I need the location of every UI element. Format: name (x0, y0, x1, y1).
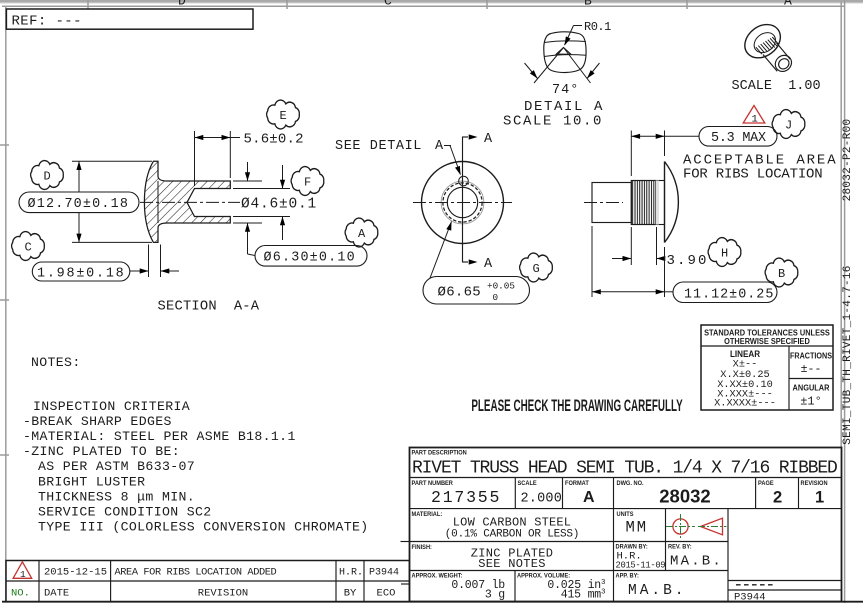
svg-text:A: A (784, 0, 792, 9)
svg-text:1: 1 (752, 114, 758, 126)
svg-text:APP. BY:: APP. BY: (616, 573, 639, 579)
svg-text:A: A (484, 132, 493, 147)
svg-text:RIVET TRUSS HEAD SEMI TUB. 1/4: RIVET TRUSS HEAD SEMI TUB. 1/4 X 7/16 RI… (412, 459, 837, 479)
svg-text:1: 1 (20, 569, 26, 580)
svg-text:-ZINC PLATED TO BE:: -ZINC PLATED TO BE: (23, 444, 180, 459)
svg-text:REV. BY:: REV. BY: (668, 544, 692, 550)
svg-text:NOTES:: NOTES: (31, 355, 81, 370)
svg-text:2015-11-09: 2015-11-09 (616, 561, 666, 571)
svg-text:SCALE 10.0: SCALE 10.0 (503, 114, 603, 130)
svg-text:SCALE 1.00: SCALE 1.00 (732, 79, 821, 94)
svg-text:±1°: ±1° (800, 395, 822, 409)
svg-text:2015-12-15: 2015-12-15 (44, 567, 107, 579)
svg-text:P3944: P3944 (369, 568, 399, 579)
svg-text:5.6±0.2: 5.6±0.2 (244, 132, 304, 148)
svg-text:ANGULAR: ANGULAR (793, 383, 830, 392)
svg-text:-MATERIAL: STEEL PER ASME B18.: -MATERIAL: STEEL PER ASME B18.1.1 (23, 429, 296, 444)
svg-text:SEMI_TUB_TH_RIVET_1-4.7-16: SEMI_TUB_TH_RIVET_1-4.7-16 (842, 265, 854, 444)
svg-text:415 mm: 415 mm (561, 589, 602, 602)
svg-text:3: 3 (601, 589, 606, 597)
svg-text:28032: 28032 (659, 486, 710, 507)
svg-text:MM: MM (626, 519, 649, 537)
svg-text:LOW CARBON STEEL: LOW CARBON STEEL (453, 516, 571, 530)
svg-text:ECO: ECO (377, 588, 396, 600)
svg-text:2.000: 2.000 (521, 492, 563, 507)
svg-text:B: B (778, 267, 785, 281)
svg-text:Ø4.6±0.1: Ø4.6±0.1 (241, 197, 317, 213)
svg-text:P3944: P3944 (734, 592, 766, 603)
svg-text:+0.05: +0.05 (487, 281, 515, 292)
svg-text:H.R.: H.R. (339, 568, 363, 579)
svg-text:D: D (178, 0, 186, 9)
svg-text:OTHERWISE SPECIFIED: OTHERWISE SPECIFIED (724, 337, 810, 347)
svg-text:AREA FOR RIBS LOCATION ADDED: AREA FOR RIBS LOCATION ADDED (115, 567, 277, 579)
svg-text:0: 0 (493, 292, 499, 303)
svg-text:±--: ±-- (801, 363, 822, 376)
svg-text:UNITS: UNITS (617, 512, 634, 518)
svg-text:G: G (533, 262, 540, 276)
svg-text:11.12±0.25: 11.12±0.25 (684, 288, 774, 303)
svg-text:MATERIAL:: MATERIAL: (412, 512, 443, 518)
svg-text:AS PER ASTM B633-07: AS PER ASTM B633-07 (38, 459, 195, 474)
svg-text:MA.B.: MA.B. (628, 583, 687, 599)
svg-text:MA.B.: MA.B. (670, 554, 723, 570)
svg-text:SCALE: SCALE (518, 481, 537, 487)
svg-text:R0.1: R0.1 (584, 20, 611, 34)
svg-text:SERVICE CONDITION SC2: SERVICE CONDITION SC2 (38, 505, 212, 520)
svg-text:A: A (435, 139, 444, 154)
svg-text:A: A (358, 227, 366, 241)
svg-text:E: E (280, 109, 287, 123)
svg-text:TYPE III (COLORLESS CONVERSION: TYPE III (COLORLESS CONVERSION CHROMATE) (38, 520, 369, 535)
svg-text:28032-P2-R00: 28032-P2-R00 (842, 119, 854, 202)
svg-text:THICKNESS 8 μm MIN.: THICKNESS 8 μm MIN. (38, 489, 195, 504)
svg-text:D: D (44, 170, 51, 184)
svg-text:PART DESCRIPTION: PART DESCRIPTION (412, 450, 467, 456)
svg-text:A: A (484, 257, 493, 272)
svg-text:1: 1 (815, 489, 824, 507)
svg-text:FORMAT: FORMAT (565, 481, 589, 487)
svg-text:SECTION A-A: SECTION A-A (158, 300, 260, 315)
svg-text:NO.: NO. (11, 588, 30, 600)
svg-text:C: C (25, 241, 32, 255)
svg-text:DATE: DATE (44, 588, 69, 600)
svg-text:REVISION: REVISION (198, 588, 248, 600)
svg-text:3: 3 (601, 579, 606, 587)
svg-text:REVISION: REVISION (801, 481, 828, 487)
svg-text:PAGE: PAGE (758, 481, 774, 487)
svg-text:74°: 74° (552, 83, 579, 98)
svg-text:X.XXXX±---: X.XXXX±--- (714, 398, 776, 410)
svg-text:3.90: 3.90 (667, 253, 709, 269)
svg-text:DWG. NO.: DWG. NO. (617, 481, 644, 487)
svg-text:SEE DETAIL: SEE DETAIL (335, 139, 422, 154)
svg-text:1.98±0.18: 1.98±0.18 (37, 267, 126, 282)
svg-text:J: J (785, 119, 792, 133)
svg-text:SEE NOTES: SEE NOTES (478, 557, 546, 571)
svg-text:Ø12.70±0.18: Ø12.70±0.18 (28, 197, 130, 212)
svg-text:FOR RIBS LOCATION: FOR RIBS LOCATION (683, 167, 822, 183)
svg-text:INSPECTION CRITERIA: INSPECTION CRITERIA (33, 399, 190, 414)
svg-text:PLEASE CHECK THE DRAWING CAREF: PLEASE CHECK THE DRAWING CAREFULLY (471, 395, 683, 415)
svg-text:(0.1% CARBON OR LESS): (0.1% CARBON OR LESS) (445, 529, 579, 541)
svg-text:B: B (584, 0, 592, 9)
svg-text:217355: 217355 (431, 488, 501, 507)
svg-text:FINISH:: FINISH: (412, 545, 432, 551)
svg-text:3 g: 3 g (485, 589, 505, 602)
svg-text:Ø6.65: Ø6.65 (438, 285, 482, 301)
svg-text:Ø6.30±0.10: Ø6.30±0.10 (264, 251, 356, 266)
svg-text:REF: ---: REF: --- (12, 14, 82, 30)
svg-text:5.3 MAX: 5.3 MAX (711, 131, 766, 146)
svg-text:C: C (384, 0, 392, 9)
svg-text:F: F (304, 176, 311, 190)
svg-text:FRACTIONS: FRACTIONS (790, 351, 832, 361)
svg-text:-BREAK SHARP EDGES: -BREAK SHARP EDGES (23, 414, 172, 429)
svg-text:2: 2 (773, 489, 782, 507)
svg-text:PART NUMBER: PART NUMBER (412, 481, 454, 487)
svg-text:BY: BY (344, 588, 357, 600)
svg-text:H: H (721, 247, 728, 261)
svg-text:A: A (583, 489, 595, 506)
svg-text:BRIGHT LUSTER: BRIGHT LUSTER (38, 474, 145, 489)
